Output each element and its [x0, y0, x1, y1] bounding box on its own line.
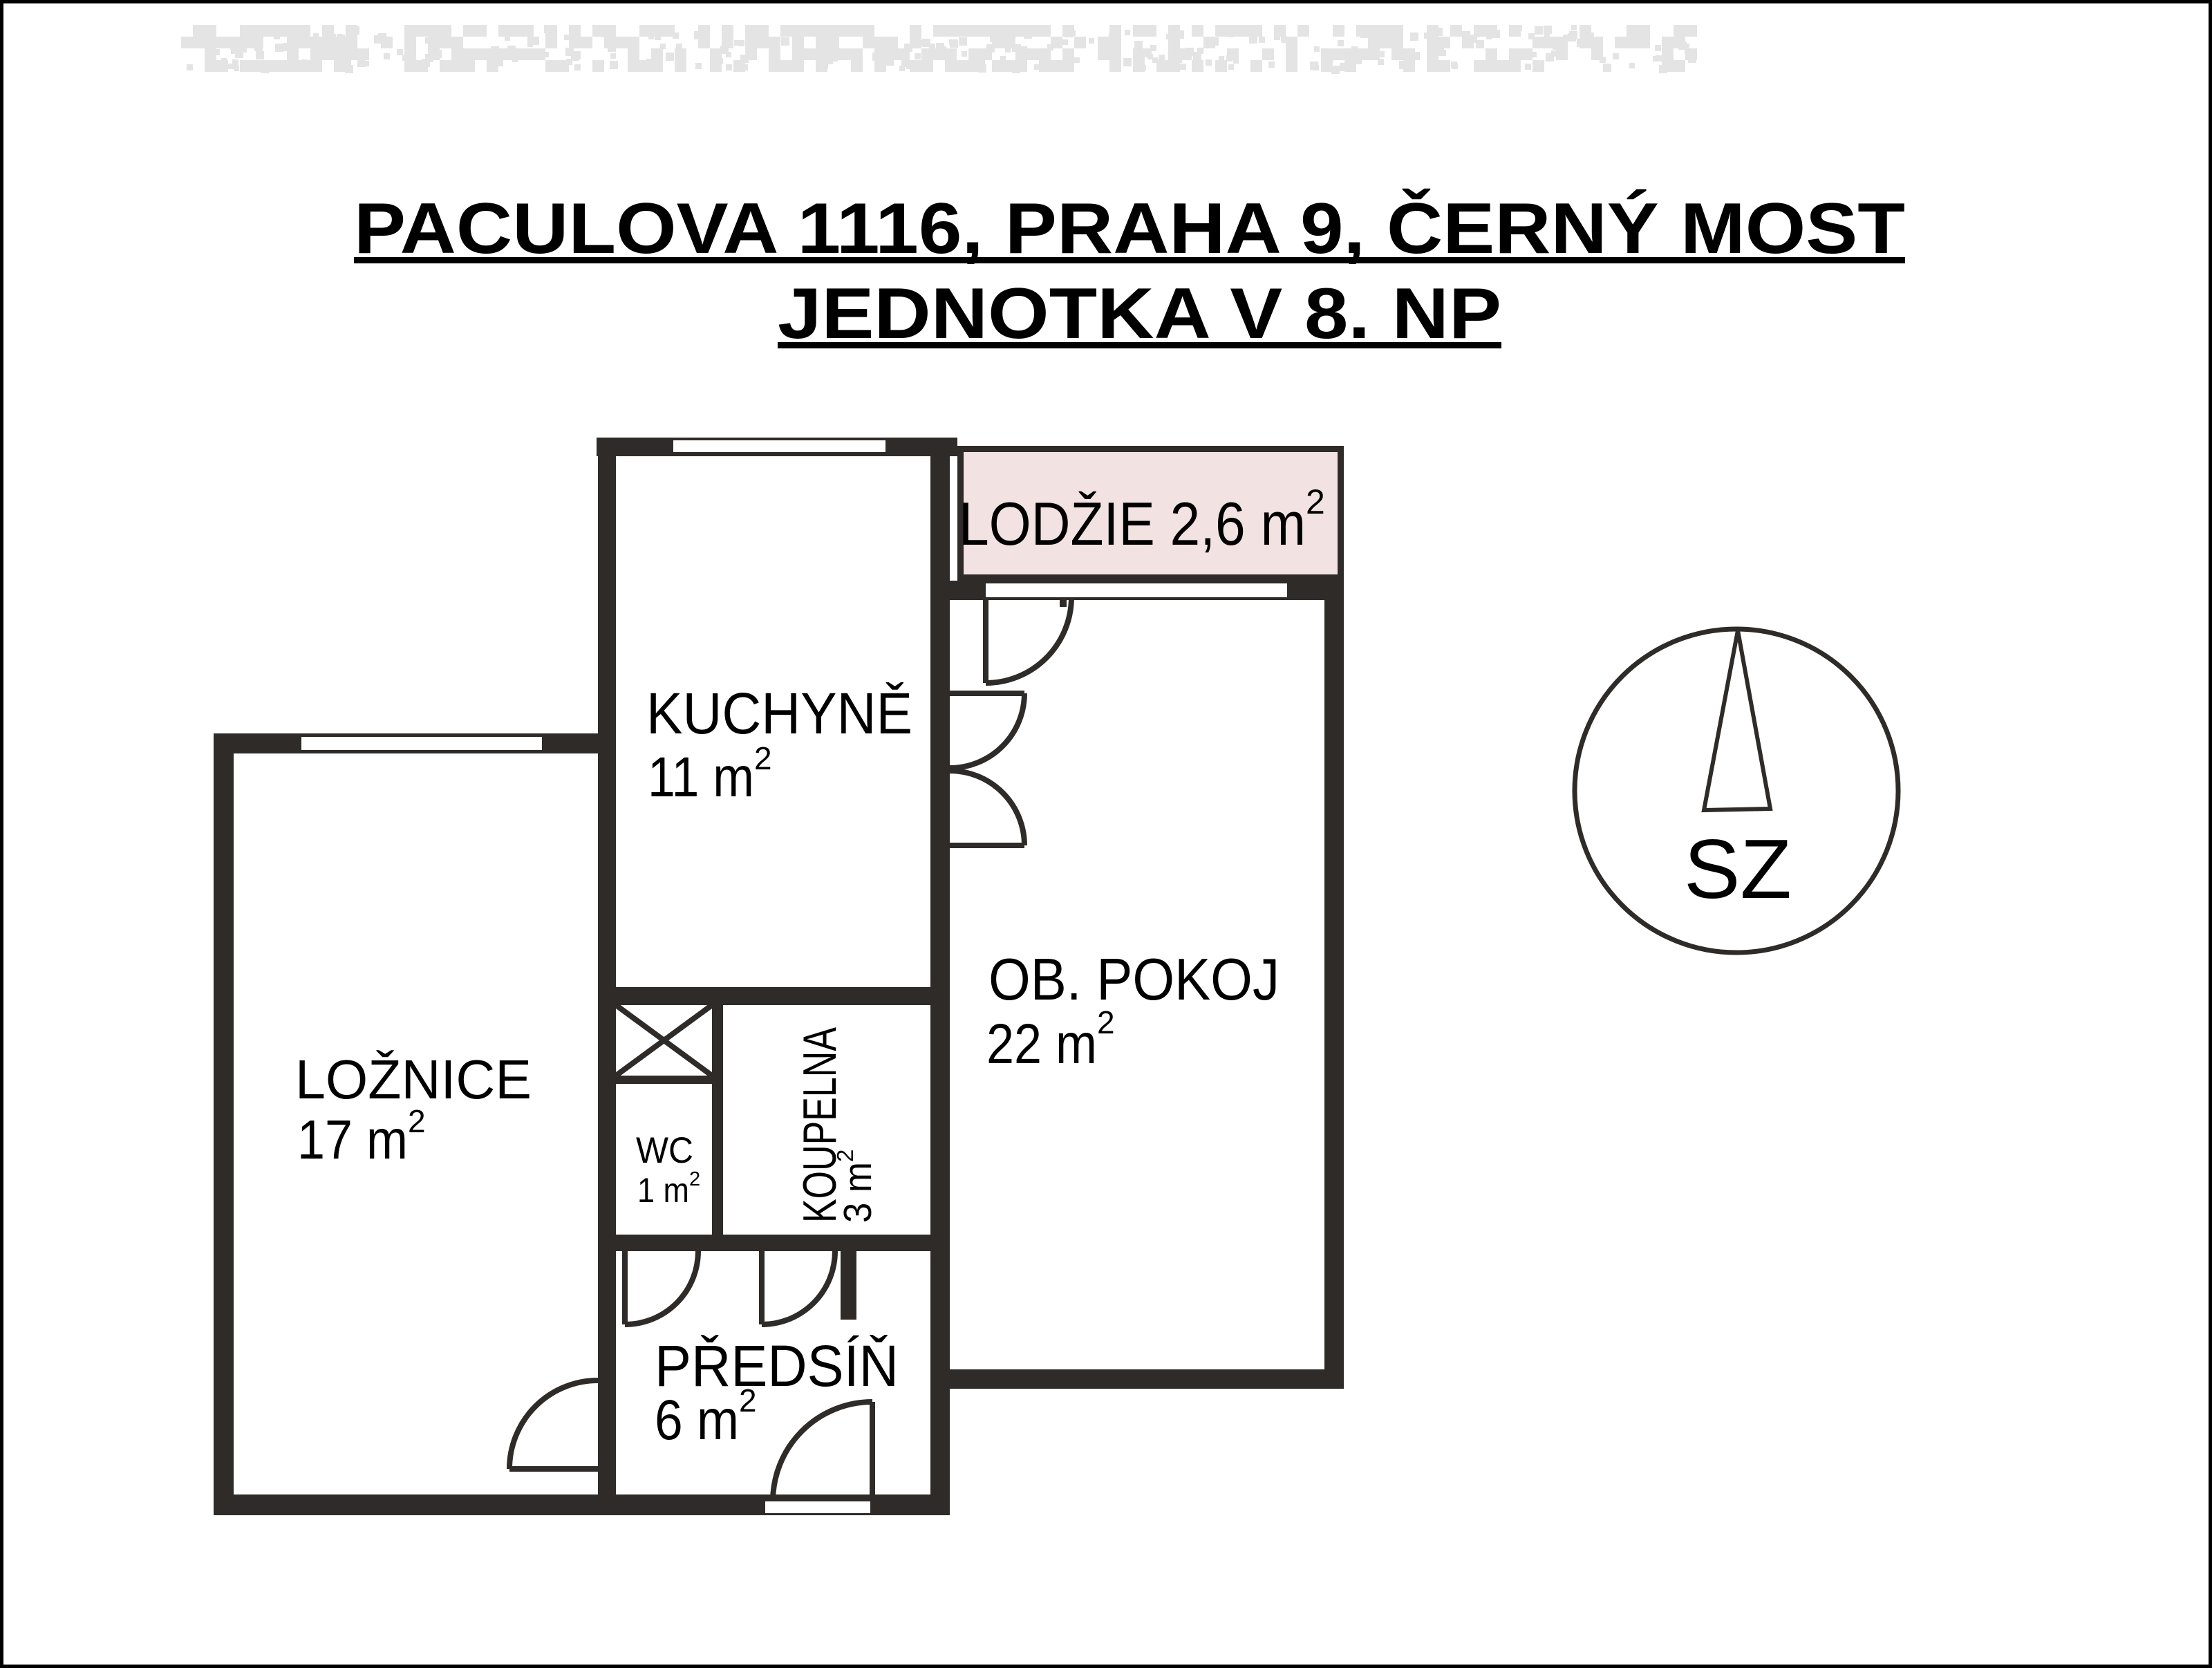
- svg-text:17 m2: 17 m2: [297, 1103, 426, 1170]
- svg-text:KUCHYNĚ: KUCHYNĚ: [646, 681, 912, 746]
- svg-text:JEDNOTKA V 8. NP: JEDNOTKA V 8. NP: [778, 274, 1501, 354]
- svg-text:11 m2: 11 m2: [648, 740, 772, 809]
- svg-text:WC: WC: [636, 1130, 693, 1171]
- svg-text:LODŽIE 2,6 m2: LODŽIE 2,6 m2: [959, 482, 1325, 558]
- svg-text:LOŽNICE: LOŽNICE: [295, 1049, 532, 1110]
- svg-text:PACULOVA 1116, PRAHA 9, ČERNÝ: PACULOVA 1116, PRAHA 9, ČERNÝ MOST: [354, 188, 1905, 269]
- svg-text:OB. POKOJ: OB. POKOJ: [988, 947, 1280, 1013]
- svg-text:SZ: SZ: [1684, 822, 1792, 916]
- svg-text:22 m2: 22 m2: [986, 1004, 1115, 1076]
